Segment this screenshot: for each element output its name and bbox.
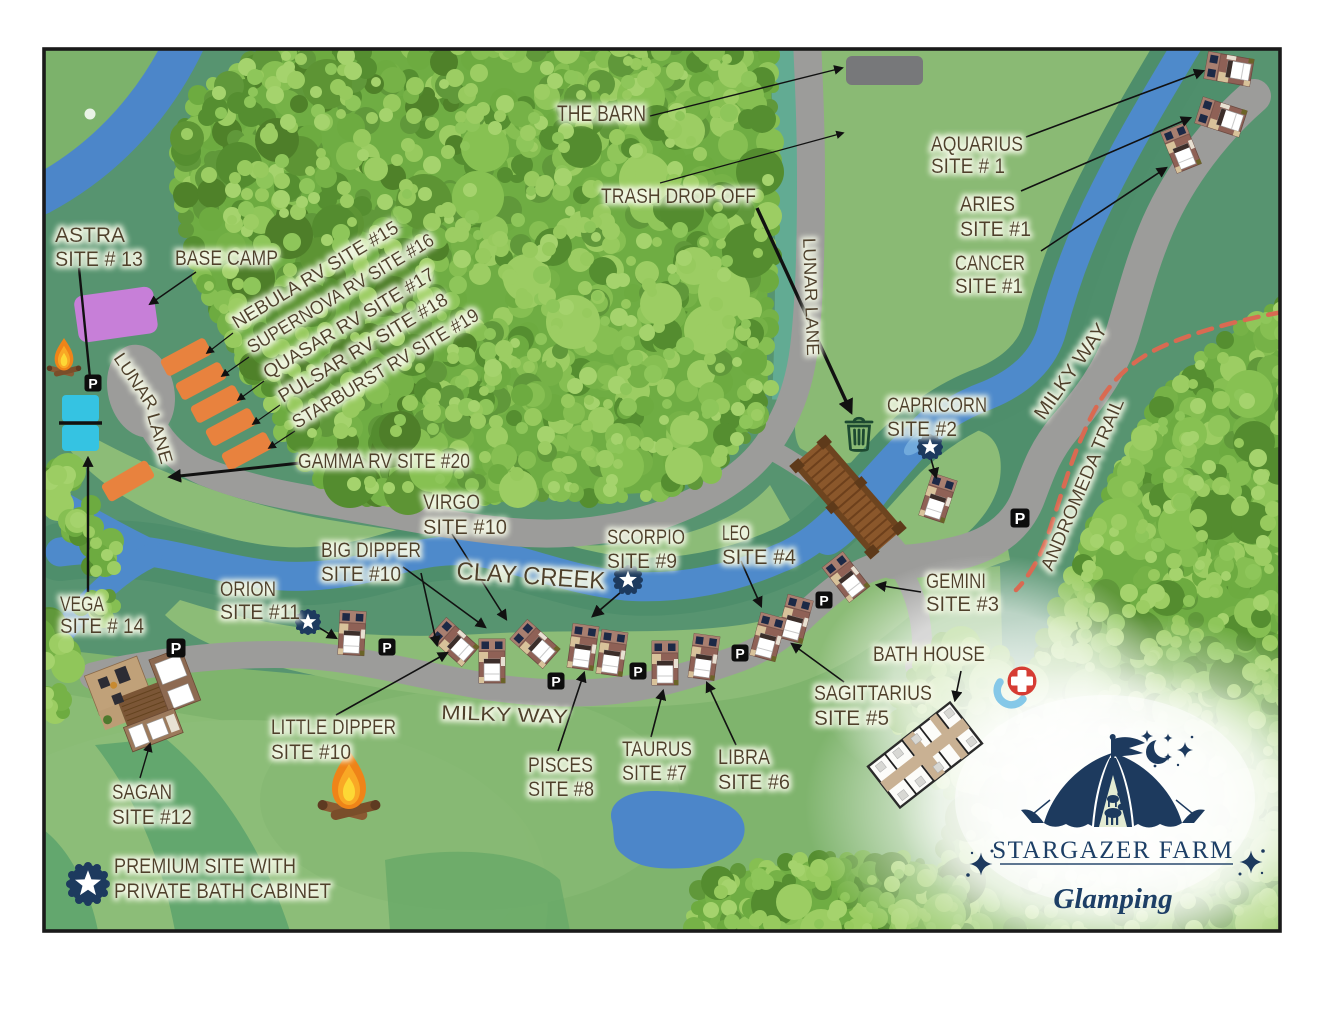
svg-text:SITE #5: SITE #5 — [814, 707, 889, 730]
svg-text:THE BARN: THE BARN — [557, 101, 646, 126]
svg-text:P: P — [551, 673, 560, 689]
svg-text:GEMINI: GEMINI — [926, 570, 986, 593]
svg-text:P: P — [1015, 511, 1026, 528]
svg-text:Glamping: Glamping — [1053, 883, 1172, 915]
svg-text:P: P — [735, 645, 744, 661]
svg-text:SITE #1: SITE #1 — [955, 275, 1023, 298]
svg-text:LITTLE DIPPER: LITTLE DIPPER — [271, 716, 396, 739]
svg-text:SCORPIO: SCORPIO — [607, 526, 685, 549]
svg-text:VEGA: VEGA — [60, 593, 104, 616]
svg-text:SITE #11: SITE #11 — [220, 601, 300, 624]
svg-text:SITE #10: SITE #10 — [321, 563, 401, 586]
svg-text:P: P — [88, 375, 97, 391]
svg-text:LIBRA: LIBRA — [718, 746, 770, 769]
svg-text:P: P — [171, 641, 182, 658]
svg-text:PREMIUM SITE WITH: PREMIUM SITE WITH — [114, 855, 296, 878]
svg-text:SITE #4: SITE #4 — [722, 546, 796, 569]
svg-text:SITE # 1: SITE # 1 — [931, 155, 1005, 178]
svg-text:AQUARIUS: AQUARIUS — [931, 133, 1023, 156]
svg-text:MILKY WAY: MILKY WAY — [441, 702, 569, 728]
svg-text:P: P — [382, 639, 391, 655]
svg-text:SITE #3: SITE #3 — [926, 593, 999, 616]
svg-text:SITE #2: SITE #2 — [887, 418, 957, 441]
svg-text:TAURUS: TAURUS — [622, 738, 692, 761]
svg-text:STARGAZER FARM: STARGAZER FARM — [992, 837, 1233, 864]
svg-text:SAGAN: SAGAN — [112, 781, 172, 804]
svg-text:SITE #6: SITE #6 — [718, 771, 790, 794]
svg-text:SITE #1: SITE #1 — [960, 218, 1031, 241]
svg-text:BASE CAMP: BASE CAMP — [175, 247, 278, 270]
svg-text:SITE #8: SITE #8 — [528, 778, 594, 801]
svg-text:PISCES: PISCES — [528, 754, 593, 777]
svg-text:ASTRA: ASTRA — [55, 224, 125, 247]
svg-text:SAGITTARIUS: SAGITTARIUS — [814, 682, 932, 705]
svg-text:SITE #10: SITE #10 — [423, 516, 507, 539]
svg-text:SITE #10: SITE #10 — [271, 741, 351, 764]
svg-text:PRIVATE BATH CABINET: PRIVATE BATH CABINET — [114, 880, 331, 903]
svg-text:P: P — [819, 592, 828, 608]
svg-text:SITE #12: SITE #12 — [112, 806, 192, 829]
svg-text:SITE #7: SITE #7 — [622, 762, 687, 785]
svg-text:ARIES: ARIES — [960, 193, 1015, 216]
svg-text:SITE # 13: SITE # 13 — [55, 248, 143, 271]
svg-text:TRASH DROP OFF: TRASH DROP OFF — [601, 185, 756, 208]
svg-text:BATH HOUSE: BATH HOUSE — [873, 643, 985, 666]
svg-text:ORION: ORION — [220, 578, 276, 601]
svg-text:VIRGO: VIRGO — [423, 491, 480, 514]
svg-text:P: P — [633, 663, 642, 679]
svg-text:CANCER: CANCER — [955, 252, 1025, 275]
svg-text:BIG DIPPER: BIG DIPPER — [321, 539, 421, 562]
svg-text:CAPRICORN: CAPRICORN — [887, 394, 987, 417]
svg-text:LEO: LEO — [722, 522, 750, 545]
svg-text:LUNAR LANE: LUNAR LANE — [799, 237, 823, 356]
svg-text:SITE #9: SITE #9 — [607, 550, 677, 573]
svg-text:SITE # 14: SITE # 14 — [60, 615, 144, 638]
svg-text:GAMMA RV SITE #20: GAMMA RV SITE #20 — [298, 450, 470, 473]
